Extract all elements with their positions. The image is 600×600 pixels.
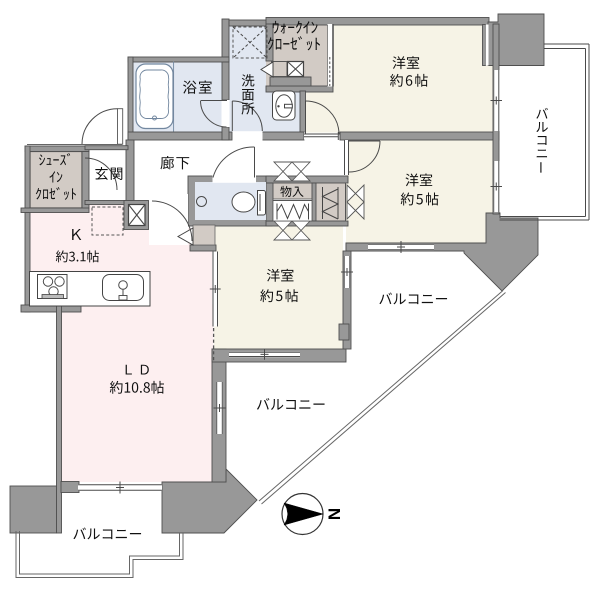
svg-text:N: N	[325, 508, 344, 520]
